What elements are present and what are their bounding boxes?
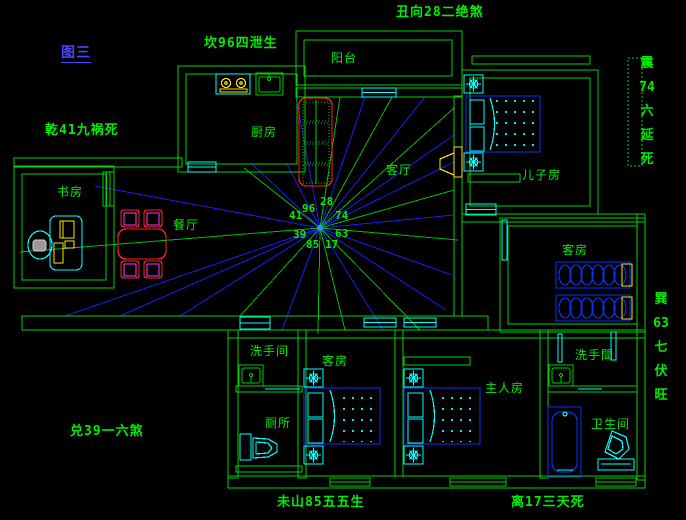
room-label-kitchen: 厨房 — [251, 126, 277, 139]
compass-label-chou: 丑向28二绝煞 — [396, 6, 484, 20]
study-desk — [50, 216, 82, 270]
room-label-washroom-se: 洗手間 — [575, 349, 614, 362]
washroom-se-sink — [549, 365, 573, 386]
room-label-master-room: 主人房 — [485, 382, 524, 395]
stove — [216, 74, 250, 94]
star-number-28: 28 — [320, 196, 333, 208]
compass-label-kan: 坎96四泄生 — [204, 37, 278, 51]
bathroom-toilet — [598, 431, 634, 470]
master-bed — [404, 388, 480, 444]
room-label-washroom-nw: 洗手间 — [250, 345, 289, 358]
room-label-living-room: 客厅 — [386, 164, 412, 177]
compass-label-xun: 巽63七伏旺 — [652, 288, 670, 408]
room-label-son-room: 儿子房 — [522, 169, 561, 182]
bathtub — [548, 407, 581, 477]
star-number-96: 96 — [302, 203, 315, 215]
guest-bed — [304, 388, 380, 444]
room-label-dining: 餐厅 — [173, 219, 199, 232]
compass-label-zhen: 震74六延死 — [638, 52, 656, 172]
figure-title: 图三 — [61, 46, 91, 63]
star-number-17: 17 — [325, 239, 338, 251]
compass-center — [317, 225, 323, 231]
room-label-balcony: 阳台 — [331, 52, 357, 65]
star-number-41: 41 — [289, 210, 302, 222]
star-number-85: 85 — [306, 239, 319, 251]
room-label-guest-south: 客房 — [322, 355, 348, 368]
compass-label-li: 离17三天死 — [511, 496, 585, 510]
room-label-toilet: 厕所 — [265, 417, 291, 430]
compass-label-dui: 兑39一六煞 — [70, 425, 144, 439]
speaker — [440, 147, 462, 177]
son-bed — [466, 96, 540, 152]
floorplan-drawing — [0, 0, 686, 520]
star-number-74: 74 — [335, 210, 348, 222]
compass-label-weishan: 未山85五五生 — [277, 496, 365, 510]
bottom-windows — [330, 478, 636, 486]
toilet-fixture — [240, 434, 277, 460]
compass-label-qian: 乾41九祸死 — [45, 124, 119, 138]
kitchen-sink — [256, 73, 283, 95]
room-label-bathroom: 卫生间 — [591, 418, 630, 431]
study-chair — [28, 231, 52, 259]
guest-twin-beds — [556, 262, 632, 321]
room-label-guest-east: 客房 — [562, 244, 588, 257]
washroom-nw-sink — [239, 365, 263, 386]
room-label-study: 书房 — [57, 186, 83, 199]
star-number-39: 39 — [293, 229, 306, 241]
floorplan-canvas: 图三 坎96四泄生 丑向28二绝煞 乾41九祸死 震74六延死 巽63七伏旺 兑… — [0, 0, 686, 520]
